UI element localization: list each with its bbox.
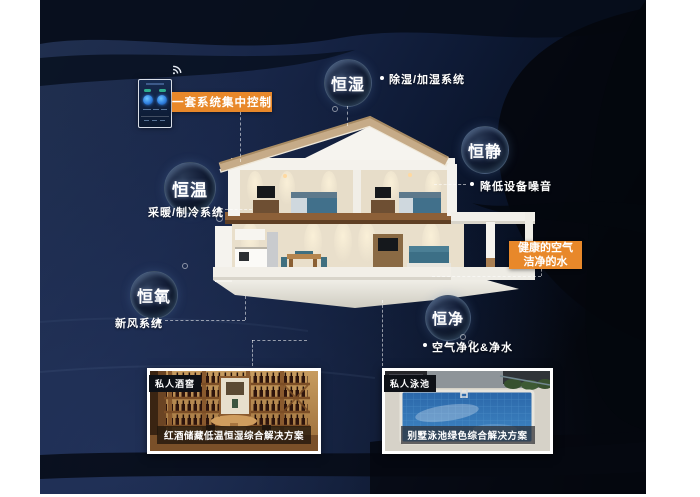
controller-title-bar: [146, 83, 164, 85]
case-tag-pool: 私人泳池: [384, 375, 436, 392]
case-photo-wine-cellar: 私人酒窖 红酒储藏低温恒湿综合解决方案: [147, 368, 321, 454]
connector-oxygen-vertical: [245, 296, 246, 320]
highlight-line2: 洁净的水: [524, 255, 568, 269]
central-control-label: 一套系统集中控制: [172, 94, 272, 110]
connector-humidity: [347, 106, 348, 126]
connector-dot: [157, 319, 161, 323]
feature-label-quiet: 恒静: [468, 138, 502, 162]
controller-button-row: [144, 120, 149, 121]
connector-oxygen: [165, 320, 245, 321]
connector-winecellar-horizontal: [252, 340, 307, 341]
controller-divider: [141, 116, 169, 117]
note-humidity: 除湿/加湿系统: [389, 71, 465, 87]
connector-control-to-house: [240, 112, 241, 162]
connector-dot: [423, 343, 427, 347]
feature-label-humidity: 恒湿: [331, 71, 365, 95]
feature-label-oxygen: 恒氧: [137, 283, 171, 307]
note-oxygen: 新风系统: [115, 315, 163, 331]
smart-home-controller: [138, 79, 172, 128]
feature-bubble-oxygen: 恒氧: [130, 271, 178, 319]
connector-dot: [217, 207, 221, 211]
controller-status-light: [159, 89, 166, 92]
controller-status-light: [144, 89, 151, 92]
connector-temperature: [225, 209, 252, 210]
controller-readout: [161, 109, 167, 110]
note-temperature: 采暖/制冷系统: [148, 204, 224, 220]
wifi-icon: [167, 61, 183, 77]
connector-quiet: [434, 184, 466, 185]
case-caption-wine-cellar: 红酒储藏低温恒湿综合解决方案: [157, 426, 311, 444]
controller-button-row: [160, 120, 165, 121]
mini-bubble-icon: [332, 106, 338, 112]
controller-readout: [153, 109, 159, 110]
highlight-line1: 健康的空气: [518, 241, 573, 255]
controller-dial-icon: [157, 95, 167, 105]
controller-button-row: [152, 120, 157, 121]
connector-highlight: [432, 276, 541, 277]
infographic-poster: 一套系统集中控制 健康的空气 洁净的水 恒湿 恒静 恒温 恒氧 恒净 除湿/加湿…: [0, 0, 700, 497]
case-photo-pool: 私人泳池 别墅泳池绿色综合解决方案: [382, 368, 553, 454]
connector-highlight-vertical: [541, 269, 542, 276]
connector-dot: [470, 182, 474, 186]
controller-dial-icon: [143, 95, 153, 105]
central-control-callout: 一套系统集中控制: [172, 92, 272, 112]
mini-bubble-icon: [182, 263, 188, 269]
case-caption-pool: 别墅泳池绿色综合解决方案: [400, 426, 534, 444]
connector-winecellar: [252, 340, 253, 366]
poster-canvas: 一套系统集中控制 健康的空气 洁净的水 恒湿 恒静 恒温 恒氧 恒净 除湿/加湿…: [40, 0, 646, 494]
feature-bubble-quiet: 恒静: [461, 126, 509, 174]
feature-label-purity: 恒净: [432, 308, 464, 329]
note-purity: 空气净化&净水: [432, 339, 513, 355]
connector-pool: [382, 300, 383, 366]
healthy-air-water-callout: 健康的空气 洁净的水: [509, 241, 582, 269]
note-quiet: 降低设备噪音: [480, 178, 552, 194]
connector-dot: [380, 76, 384, 80]
feature-bubble-humidity: 恒湿: [324, 59, 372, 107]
case-tag-wine-cellar: 私人酒窖: [149, 375, 201, 392]
controller-readout: [143, 109, 151, 110]
feature-label-temperature: 恒温: [172, 176, 208, 201]
